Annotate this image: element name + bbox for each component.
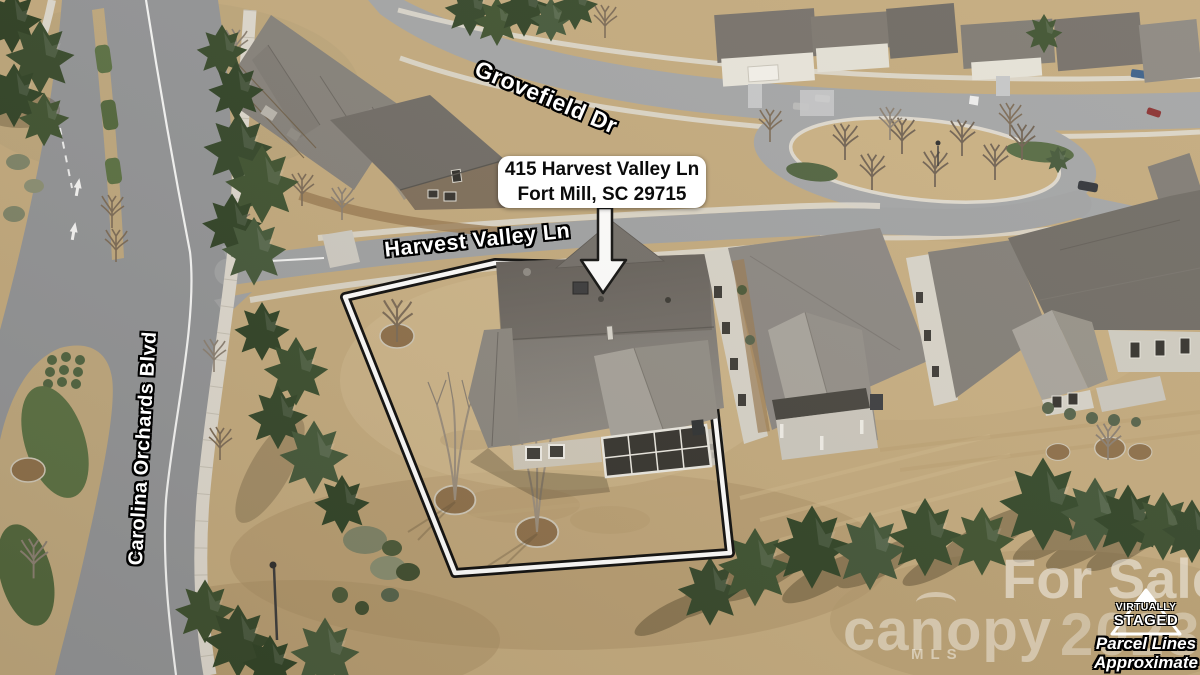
canopy-logo-arc-icon — [916, 592, 956, 613]
aerial-photo: 415 Harvest Valley Ln Fort Mill, SC 2971… — [0, 0, 1200, 675]
staged-badge-line2: STAGED — [1106, 612, 1186, 629]
parcel-disclaimer-line2: Approximate — [1080, 653, 1200, 672]
parcel-disclaimer-line1: Parcel Lines — [1080, 634, 1200, 653]
address-line1: 415 Harvest Valley Ln — [505, 158, 699, 181]
parcel-disclaimer: Parcel Lines Approximate — [1080, 634, 1200, 672]
address-line2: Fort Mill, SC 29715 — [518, 183, 687, 206]
virtually-staged-badge: VIRTUALLY STAGED — [1106, 588, 1186, 638]
address-callout: 415 Harvest Valley Ln Fort Mill, SC 2971… — [498, 156, 706, 208]
watermark-canopy-mls: MLS — [911, 646, 964, 663]
